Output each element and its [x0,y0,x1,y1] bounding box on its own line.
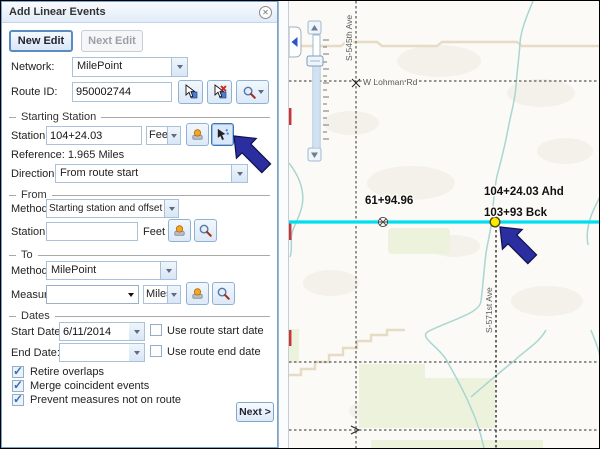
reference-text: Reference: 1.965 Miles [11,149,124,161]
direction-select[interactable]: From route start [55,164,248,183]
station-label-left: 61+94.96 [365,195,413,207]
direction-dropdown-icon[interactable] [231,165,247,182]
retire-overlaps-checkbox[interactable] [12,366,24,378]
magnifier-icon [216,286,231,301]
map-canvas[interactable]: W Lohman Rd S-545th Ave S-571st Ave 61+9… [289,1,599,448]
use-route-start-date-checkbox[interactable] [150,324,162,336]
reference-point-marker [378,217,387,226]
measure-unit-select[interactable]: Miles [143,285,181,304]
magnifier-icon [242,85,257,100]
prevent-measures-checkbox[interactable] [12,394,24,406]
chevron-down-icon [258,90,264,97]
from-measure-button[interactable] [168,219,191,242]
screenshot-frame: Add Linear Events ✕ New Edit Next Edit N… [0,0,600,449]
from-station-label: Station: [11,226,48,238]
start-date-label: Start Date: [11,326,64,338]
from-unit-label: Feet [143,226,165,238]
measure-unit-dropdown-icon[interactable] [167,286,180,303]
start-date-input[interactable] [59,322,130,341]
select-point-icon [215,127,230,142]
end-date-label: End Date: [11,347,60,359]
chevron-down-icon [134,351,140,358]
new-edit-button[interactable]: New Edit [9,30,73,52]
section-dates: Dates [9,310,270,322]
station-label-back: 103+93 Bck [484,207,548,219]
panel-title: Add Linear Events [2,2,277,23]
from-method-value: Starting station and offset [47,200,164,217]
measure-point-icon [190,127,205,142]
route-search-dropdown-button[interactable] [236,80,269,104]
direction-label: Direction: [11,168,57,180]
to-method-dropdown-icon[interactable] [160,262,176,279]
to-method-label: Method: [11,265,51,277]
use-route-end-date-label: Use route end date [167,346,261,358]
network-value: MilePoint [73,58,171,76]
prevent-measures-label: Prevent measures not on route [30,394,181,406]
slider-track-fill [314,66,319,147]
station-unit-dropdown-icon[interactable] [167,127,180,144]
to-method-select[interactable]: MilePoint [46,261,177,280]
route-id-input[interactable] [72,82,172,102]
measure-point-icon [190,286,205,301]
station-input[interactable] [46,126,142,145]
panel-map-splitter[interactable] [278,1,289,448]
road-label-vertical-right: S-571st Ave [484,287,494,333]
measure-combo[interactable] [46,285,139,304]
network-dropdown-icon[interactable] [171,58,187,76]
section-to: To [9,249,270,261]
measure-point-icon [172,223,187,238]
direction-value: From route start [56,165,231,182]
measure-dropdown-icon[interactable] [124,286,138,303]
from-zoom-button[interactable] [194,219,217,242]
merge-coincident-events-label: Merge coincident events [30,380,149,392]
network-label: Network: [11,61,54,73]
next-edit-button[interactable]: Next Edit [81,30,143,52]
use-route-start-date-label: Use route start date [167,325,264,337]
end-date-input[interactable] [59,343,130,362]
from-method-label: Method: [11,203,51,215]
use-route-end-date-checkbox[interactable] [150,345,162,357]
from-method-select[interactable]: Starting station and offset [46,199,179,218]
magnifier-icon [198,223,213,238]
section-starting-station: Starting Station [9,111,270,123]
add-linear-events-panel: Add Linear Events ✕ New Edit Next Edit N… [1,1,278,448]
clear-route-selection-button[interactable] [207,80,232,104]
merge-coincident-events-checkbox[interactable] [12,380,24,392]
chevron-down-icon [134,330,140,337]
end-date-picker-button[interactable] [129,343,145,362]
station-label: Station: [11,130,48,142]
station-measure-button[interactable] [186,123,209,146]
road-label-vertical-left: S-545th Ave [344,15,354,61]
to-measure-button[interactable] [186,282,209,305]
select-route-on-map-button[interactable] [178,80,203,104]
land-parcels [289,228,543,448]
to-method-value: MilePoint [47,262,160,279]
from-station-input[interactable] [46,222,138,241]
station-pick-on-map-button[interactable] [211,123,234,146]
zoom-slider[interactable] [307,21,329,161]
annotation-arrow-map [500,227,537,264]
close-icon[interactable]: ✕ [259,6,272,19]
pointer-clear-icon [212,84,228,100]
measure-value [47,286,124,303]
next-button[interactable]: Next > [236,402,274,422]
station-unit-value: Feet [147,127,167,144]
station-label-ahead: 104+24.03 Ahd [484,186,564,198]
start-date-picker-button[interactable] [129,322,145,341]
measure-unit-value: Miles [144,286,167,303]
road-label-horizontal: W Lohman Rd [363,77,418,87]
network-select[interactable]: MilePoint [72,57,188,77]
from-method-dropdown-icon[interactable] [164,200,178,217]
retire-overlaps-label: Retire overlaps [30,366,104,378]
station-unit-select[interactable]: Feet [146,126,181,145]
route-id-label: Route ID: [11,86,57,98]
collapse-panel-tab[interactable] [289,27,301,57]
to-zoom-button[interactable] [212,282,235,305]
map-pointer-icon [183,84,199,100]
